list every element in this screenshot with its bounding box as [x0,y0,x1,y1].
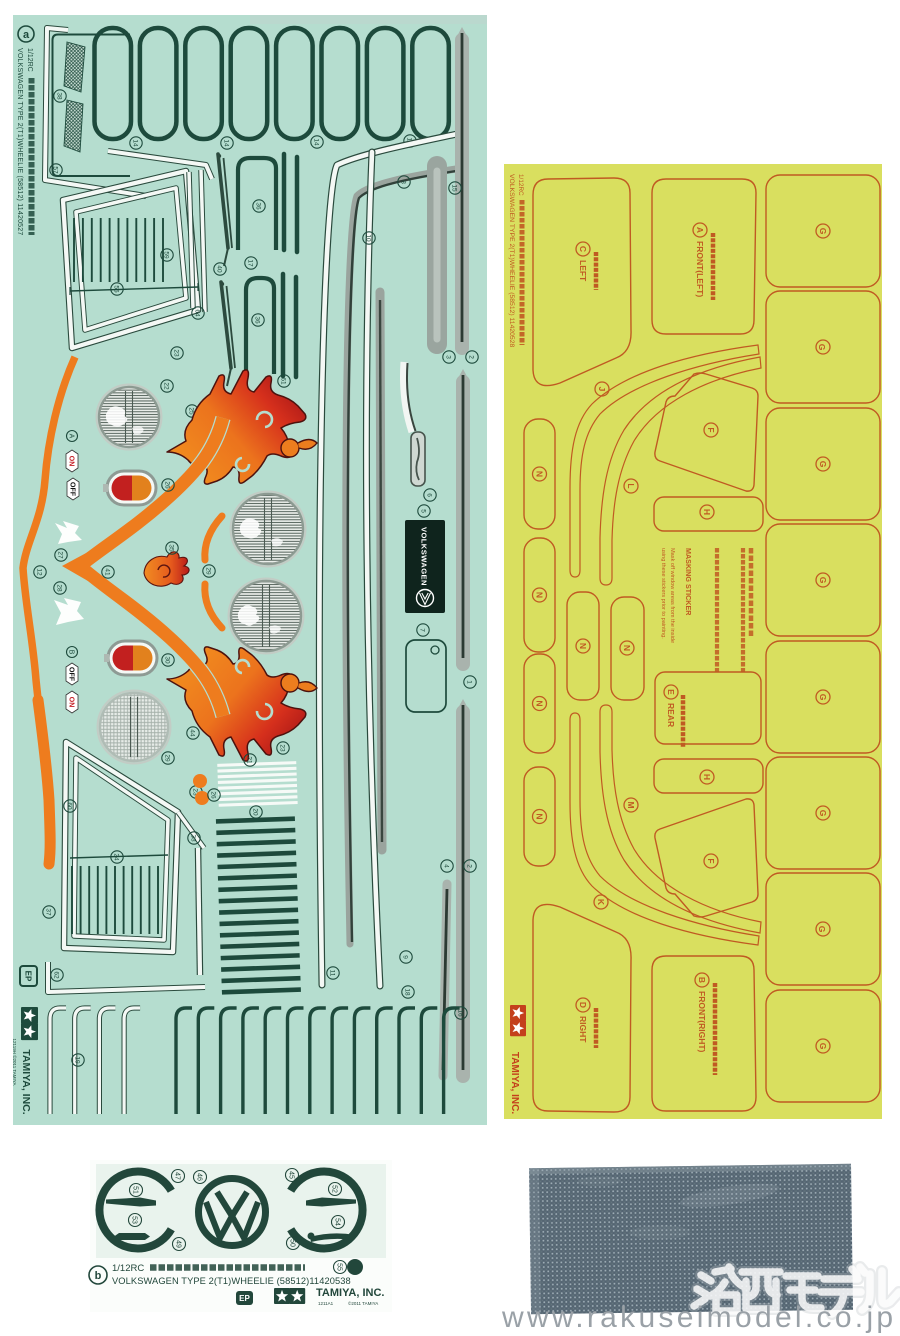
svg-text:23: 23 [173,349,180,357]
svg-text:2: 2 [468,355,475,359]
svg-text:10: 10 [365,234,372,242]
svg-text:46: 46 [196,1173,203,1181]
svg-text:5: 5 [420,509,427,513]
svg-text:VOLKSWAGEN TYPE 2(T1)WHEELIE (: VOLKSWAGEN TYPE 2(T1)WHEELIE (58512)1142… [112,1276,351,1286]
svg-text:FRONT(RIGHT): FRONT(RIGHT) [697,991,707,1053]
svg-text:55: 55 [336,1263,343,1271]
svg-text:20: 20 [252,808,259,816]
svg-text:L: L [626,483,636,488]
svg-text:21: 21 [246,756,253,764]
svg-text:38: 38 [56,92,63,100]
svg-text:41: 41 [104,568,111,576]
svg-text:G: G [818,1043,828,1050]
svg-text:14: 14 [223,139,230,147]
svg-text:H: H [702,774,712,780]
svg-text:VOLKSWAGEN TYPE 2(T1)WHEELIE (: VOLKSWAGEN TYPE 2(T1)WHEELIE (58512) 114… [508,174,515,347]
svg-text:OFF: OFF [69,482,76,497]
svg-text:B: B [68,650,75,655]
svg-text:LEFT: LEFT [578,260,588,282]
svg-text:61: 61 [280,377,287,385]
svg-text:8: 8 [400,180,407,184]
svg-text:N: N [622,645,632,651]
svg-text:B: B [697,977,707,983]
svg-text:64: 64 [194,309,201,317]
svg-text:7: 7 [419,628,426,632]
svg-text:18: 18 [404,988,411,996]
svg-text:12119H ©2011 TAMIYA: 12119H ©2011 TAMIYA [12,1039,18,1086]
svg-text:16: 16 [457,1009,464,1017]
svg-text:17: 17 [247,259,254,267]
svg-text:M: M [626,801,636,808]
svg-text:ON: ON [68,697,75,708]
svg-text:VOLKSWAGEN TYPE 2(T1)WHEELIE (: VOLKSWAGEN TYPE 2(T1)WHEELIE (58512) 114… [16,48,23,235]
svg-text:14: 14 [313,138,320,146]
svg-text:29: 29 [205,567,212,575]
svg-text:9: 9 [402,955,409,959]
svg-text:1/12RC: 1/12RC [26,48,33,72]
svg-text:44: 44 [189,729,196,737]
svg-text:G: G [817,344,827,351]
svg-text:36: 36 [254,316,261,324]
svg-text:K: K [596,899,606,906]
svg-text:G: G [818,577,828,584]
svg-text:33: 33 [190,834,197,842]
svg-text:N: N [534,700,544,706]
svg-text:A: A [68,434,75,439]
svg-text:45: 45 [288,1171,295,1179]
svg-text:26: 26 [164,481,171,489]
svg-text:53: 53 [131,1216,138,1224]
svg-text:EP: EP [24,971,33,982]
svg-text:a: a [23,29,30,41]
svg-text:12: 12 [36,568,43,576]
svg-text:2: 2 [466,864,473,868]
svg-text:50: 50 [289,1239,296,1247]
svg-text:28: 28 [56,584,63,592]
svg-text:29: 29 [164,754,171,762]
svg-text:G: G [817,926,827,933]
svg-text:Mask off window areas from the: Mask off window areas from the inside [669,548,675,643]
svg-text:24: 24 [113,853,120,861]
svg-text:6: 6 [426,493,433,497]
svg-text:60: 60 [66,802,73,810]
svg-text:C: C [578,246,588,252]
svg-text:N: N [534,813,544,819]
svg-text:14: 14 [132,139,139,147]
svg-text:52: 52 [331,1185,338,1193]
svg-text:36: 36 [255,202,262,210]
svg-text:15: 15 [451,184,458,192]
svg-text:49: 49 [175,1240,182,1248]
svg-text:F: F [706,858,716,863]
svg-text:47: 47 [174,1172,181,1180]
svg-text:11: 11 [329,970,336,977]
svg-text:TAMIYA, INC.: TAMIYA, INC. [20,1049,32,1114]
svg-text:G: G [818,461,828,468]
svg-text:40: 40 [216,265,223,273]
svg-text:51: 51 [132,1186,139,1194]
svg-text:TAMIYA, INC.: TAMIYA, INC. [316,1287,384,1299]
svg-text:1/12RC: 1/12RC [517,174,524,196]
svg-text:REAR: REAR [666,703,676,727]
svg-text:©2011 TAMIYA: ©2011 TAMIYA [348,1300,378,1306]
svg-text:b: b [95,1270,102,1282]
svg-text:ON: ON [68,456,75,467]
svg-text:OFF: OFF [68,667,75,682]
svg-text:FRONT(LEFT): FRONT(LEFT) [695,241,705,297]
svg-text:57: 57 [52,166,59,174]
svg-text:using these stickers prior to: using these stickers prior to painting. [660,548,666,639]
svg-text:G: G [818,694,828,701]
svg-text:22: 22 [163,382,170,390]
svg-text:56: 56 [113,285,120,293]
svg-text:1211A1: 1211A1 [318,1301,334,1306]
svg-text:G: G [818,810,828,817]
svg-text:35: 35 [168,544,175,552]
svg-text:www.rakuseimodel.co.jp: www.rakuseimodel.co.jp [501,1301,896,1334]
svg-text:54: 54 [334,1218,341,1226]
svg-text:1: 1 [466,680,473,684]
svg-text:3: 3 [445,355,452,359]
svg-text:MASKING STICKER: MASKING STICKER [684,548,693,616]
svg-text:RIGHT: RIGHT [578,1016,588,1043]
svg-text:37: 37 [45,908,52,916]
svg-text:G: G [818,228,828,235]
svg-text:VOLKSWAGEN: VOLKSWAGEN [420,527,429,586]
svg-text:4: 4 [443,864,450,868]
svg-text:EP: EP [239,1294,250,1303]
svg-text:H: H [702,509,712,515]
svg-text:30: 30 [164,656,171,664]
svg-text:26: 26 [210,791,217,799]
svg-text:N: N [578,643,588,649]
svg-text:27: 27 [57,551,64,559]
svg-text:62: 62 [53,971,60,979]
svg-text:19: 19 [74,1056,81,1064]
svg-text:1/12RC: 1/12RC [112,1263,144,1274]
svg-text:J: J [597,387,607,392]
svg-text:D: D [578,1002,588,1008]
svg-text:23: 23 [279,744,286,752]
svg-text:A: A [695,227,705,233]
svg-text:N: N [534,592,544,598]
svg-text:E: E [666,689,676,695]
svg-text:TAMIYA, INC.: TAMIYA, INC. [509,1052,520,1114]
svg-text:F: F [706,427,716,432]
svg-text:N: N [534,471,544,477]
svg-text:59: 59 [163,251,170,259]
